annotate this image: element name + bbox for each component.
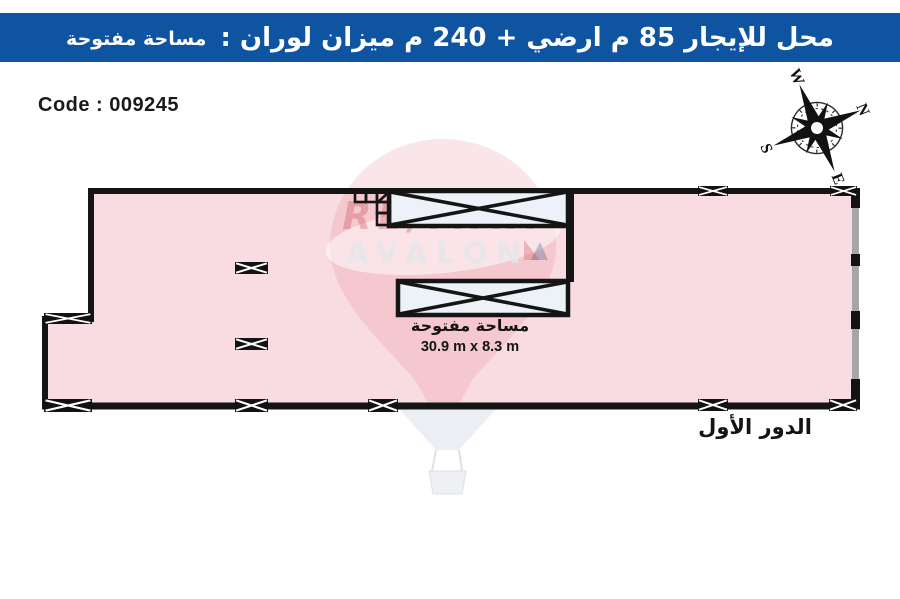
glass-wall-strip xyxy=(852,193,859,406)
window-symbol xyxy=(830,186,857,196)
watermark-string-right xyxy=(459,450,462,471)
screenshot-stage: محل للإيجار 85 م ارضي + 240 م ميزان لورا… xyxy=(0,0,900,599)
glass-wall-pier xyxy=(851,311,860,329)
area-dimensions-label: 30.9 m x 8.3 m xyxy=(390,339,550,355)
window-symbol xyxy=(698,186,728,196)
wall-stair-core xyxy=(566,189,574,282)
column-symbol xyxy=(235,338,268,350)
right-glass-wall xyxy=(851,190,860,408)
floor-label: الدور الأول xyxy=(688,415,822,439)
skylight-bottom xyxy=(398,281,568,315)
watermark-cone xyxy=(398,408,497,450)
window-symbol xyxy=(368,399,398,412)
watermark-basket xyxy=(429,471,466,494)
window-symbol xyxy=(44,399,92,412)
column-symbol xyxy=(235,262,268,274)
window-symbol xyxy=(698,399,728,411)
watermark-string-left xyxy=(432,450,436,471)
window-symbol xyxy=(235,399,268,412)
window-symbol xyxy=(44,313,92,324)
floor-plan: RE/MAX AVALON xyxy=(0,0,900,599)
watermark-name-text: AVALON xyxy=(346,236,530,270)
window-symbol xyxy=(829,399,857,411)
glass-wall-pier xyxy=(851,254,860,266)
skylight-top xyxy=(389,191,568,226)
area-label: مساحة مفتوحة xyxy=(390,316,550,335)
